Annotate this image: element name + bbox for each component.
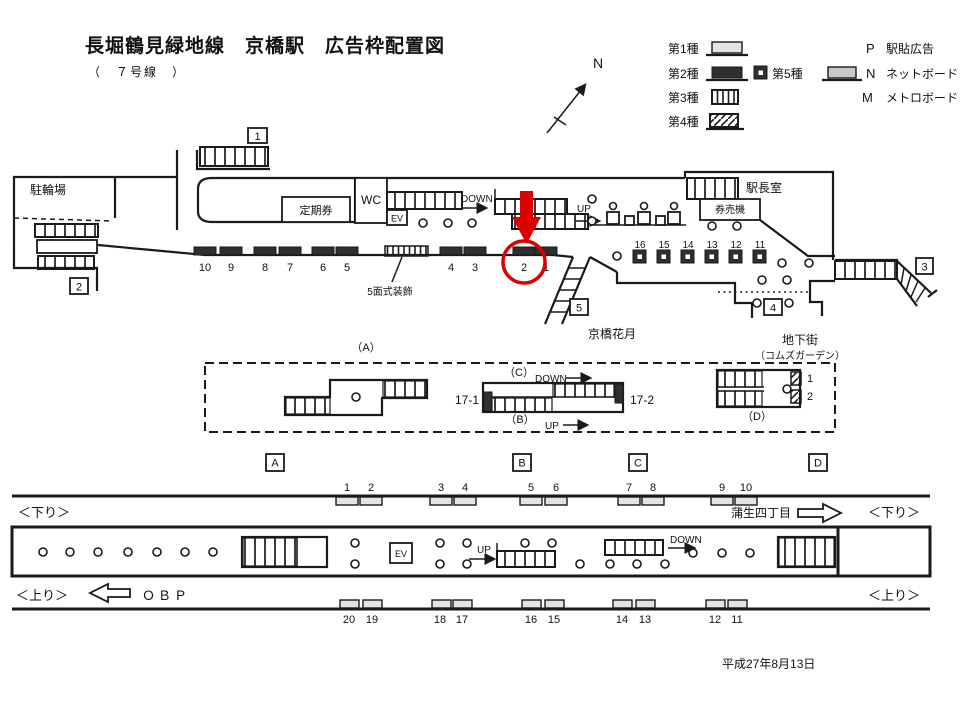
ad-number: 5: [344, 262, 350, 274]
exit5-label: 5: [576, 303, 582, 315]
top-ad-row: 1 2 3 4 5 6 7 8 9 10: [336, 482, 757, 505]
ad-number: 3: [472, 262, 478, 274]
stairs-a: [285, 380, 427, 415]
ad-number: 14: [616, 614, 628, 626]
ad-number: 20: [343, 614, 355, 626]
exit1-stairs: [200, 147, 268, 166]
netboard-swatch-icon: [828, 67, 856, 78]
ad-number: 9: [228, 262, 234, 274]
section-marker-boxes: A B C D: [266, 454, 827, 471]
page-title: 長堀鶴見緑地線 京橋駅 広告枠配置図: [85, 34, 445, 57]
legend-type5-label: 第5種: [772, 67, 803, 81]
ad-number: 10: [740, 482, 752, 494]
section-d-label: （D）: [742, 410, 772, 423]
ad-number: 8: [650, 482, 656, 494]
gamo-label: 蒲生四丁目: [731, 506, 791, 520]
platform-down-label: DOWN: [670, 535, 702, 546]
compass: N: [547, 55, 603, 133]
legend-type4-label: 第4種: [668, 115, 699, 129]
obp-label: ＯＢＰ: [142, 588, 190, 603]
concourse-level: 駐輪場 1 2 定期券 WC EV DOWN UP: [14, 128, 937, 362]
dashed-boundary: [14, 218, 112, 221]
ad-number: 19: [366, 614, 378, 626]
platform-level: 1 2 3 4 5 6 7 8 9 10 ＜下り＞ 蒲生四丁目 ＜下り＞: [12, 482, 930, 626]
station-map-svg: 長堀鶴見緑地線 京橋駅 広告枠配置図 （ ７号線 ） N 第1種 第2種 第5種…: [0, 0, 960, 720]
section-a-label: （A）: [351, 341, 380, 354]
d-ad-2-label: 2: [807, 391, 813, 403]
stairs-d: 1 2 （D）: [717, 370, 813, 423]
box-d-label: D: [814, 458, 822, 470]
down-line-right-label: ＜下り＞: [868, 505, 920, 520]
legend: 第1種 第2種 第5種 第3種 第4種 P 駅貼広告 N ネットボード M メト…: [668, 41, 958, 129]
ad-number: 7: [626, 482, 632, 494]
five-panel-label: 5面式装飾: [367, 285, 413, 298]
ad-number: 4: [448, 262, 454, 274]
ad-number: 10: [199, 262, 211, 274]
ad-number: 15: [548, 614, 560, 626]
gamo-arrow-icon: [798, 504, 841, 522]
ad-number: 13: [639, 614, 651, 626]
section-b-label: （B）: [505, 413, 534, 426]
exit3-label: 3: [921, 262, 927, 274]
legend-p-key: P: [866, 41, 875, 56]
ad-number: 12: [730, 240, 742, 251]
up-line-left-label: ＜上り＞: [16, 588, 68, 603]
ad-number: 11: [755, 240, 766, 251]
ad-number: 9: [719, 482, 725, 494]
platform-right-stairs: [778, 537, 835, 567]
elevator-platform-label: EV: [395, 549, 407, 559]
wc-stairs: [387, 192, 462, 209]
type4-swatch-icon: [710, 114, 738, 127]
ad-number: 16: [634, 240, 646, 251]
ad-number: 18: [434, 614, 446, 626]
ad-number: 6: [553, 482, 559, 494]
exit3-stairs-horizontal: [835, 261, 897, 279]
wc-label: WC: [361, 193, 381, 207]
escalators-bc: （C） DOWN 17-1 17-2 （B） UP: [455, 366, 654, 432]
exit1-label: 1: [254, 131, 260, 143]
revision-date: 平成27年8月13日: [722, 657, 815, 671]
up-line-right-label: ＜上り＞: [868, 588, 920, 603]
d-ad-1-label: 1: [807, 373, 813, 385]
ad-number: 5: [528, 482, 534, 494]
ad-number: 11: [731, 614, 742, 626]
ad-number: 16: [525, 614, 537, 626]
platform-down-escalator: [605, 540, 663, 555]
coms-garden-label: （コムズガーデン）: [755, 349, 845, 362]
ad-placement-map: 長堀鶴見緑地線 京橋駅 広告枠配置図 （ ７号線 ） N 第1種 第2種 第5種…: [0, 0, 960, 720]
obp-arrow-icon: [90, 584, 130, 602]
type3-swatch-icon: [712, 90, 738, 104]
elevator-upper-label: EV: [391, 214, 403, 224]
exit2-stairs-upper: [35, 224, 98, 237]
platform-end-room: [838, 527, 930, 576]
type2-swatch-icon: [712, 67, 742, 78]
box-a-label: A: [271, 458, 279, 470]
ad-number: 1: [344, 482, 350, 494]
legend-n-label: ネットボード: [886, 67, 958, 81]
legend-m-key: M: [862, 90, 873, 105]
station-master-label: 駅長室: [746, 180, 782, 195]
ad-number: 15: [658, 240, 670, 251]
ad-number: 8: [262, 262, 268, 274]
ad-number: 4: [462, 482, 468, 494]
ad-number: 17: [456, 614, 468, 626]
platform-left-stairs: [242, 537, 327, 567]
kyobashi-kagetsu-label: 京橋花月: [588, 326, 636, 341]
bicycle-parking-label: 駐輪場: [30, 182, 66, 197]
compass-north-label: N: [593, 55, 603, 71]
mezzanine-level: （A） （C） DOWN 17-1 17-2 （B） UP: [205, 341, 835, 471]
d-ad-2: [791, 390, 801, 403]
bottom-ad-row: 20 19 18 17 16 15 14 13 12 11: [340, 600, 747, 626]
ad-number: 2: [368, 482, 374, 494]
box-b-label: B: [518, 458, 525, 470]
ad-number: 12: [709, 614, 721, 626]
legend-n-key: N: [866, 66, 875, 81]
ad-number: 3: [438, 482, 444, 494]
box-c-label: C: [634, 458, 642, 470]
ad-number-highlighted: 2: [521, 262, 527, 274]
exit4-label: 4: [770, 303, 776, 315]
platform-up-escalator: [497, 551, 555, 567]
up-label-upper: UP: [577, 204, 591, 215]
concourse-outline: [14, 150, 898, 318]
legend-m-label: メトロボード: [886, 91, 958, 105]
station-master-stairs: [687, 178, 738, 199]
exit2-stairs-lower: [38, 256, 94, 269]
esc-left-label: 17-1: [455, 393, 479, 407]
ad-number: 13: [706, 240, 718, 251]
down-line-left-label: ＜下り＞: [18, 505, 70, 520]
exit2-label: 2: [76, 282, 82, 294]
underground-mall-label: 地下街: [782, 333, 818, 347]
platform-up-label: UP: [477, 545, 491, 556]
legend-p-label: 駅貼広告: [886, 41, 934, 56]
commuter-pass-label: 定期券: [300, 203, 333, 217]
type1-swatch-icon: [712, 42, 742, 53]
ticket-machines-label: 券売機: [715, 203, 745, 216]
esc-right-label: 17-2: [630, 393, 654, 407]
d-ad-1: [791, 372, 801, 385]
ad-number: 6: [320, 262, 326, 274]
legend-type3-label: 第3種: [668, 91, 699, 105]
mezz-down-label: DOWN: [535, 374, 567, 385]
five-panel-board: [385, 246, 428, 256]
legend-type1-label: 第1種: [668, 42, 699, 56]
mezz-up-label: UP: [545, 421, 559, 432]
ticket-gates: [590, 203, 686, 226]
down-label-upper: DOWN: [461, 194, 493, 205]
legend-type2-label: 第2種: [668, 67, 699, 81]
page-subtitle: （ ７号線 ）: [88, 64, 186, 79]
ad-number: 14: [682, 240, 694, 251]
type5-ad-row: 16 15 14 13 12 11: [633, 240, 766, 263]
section-c-label: （C）: [504, 366, 534, 379]
ad-number: 7: [287, 262, 293, 274]
exit2-landing: [37, 240, 97, 253]
